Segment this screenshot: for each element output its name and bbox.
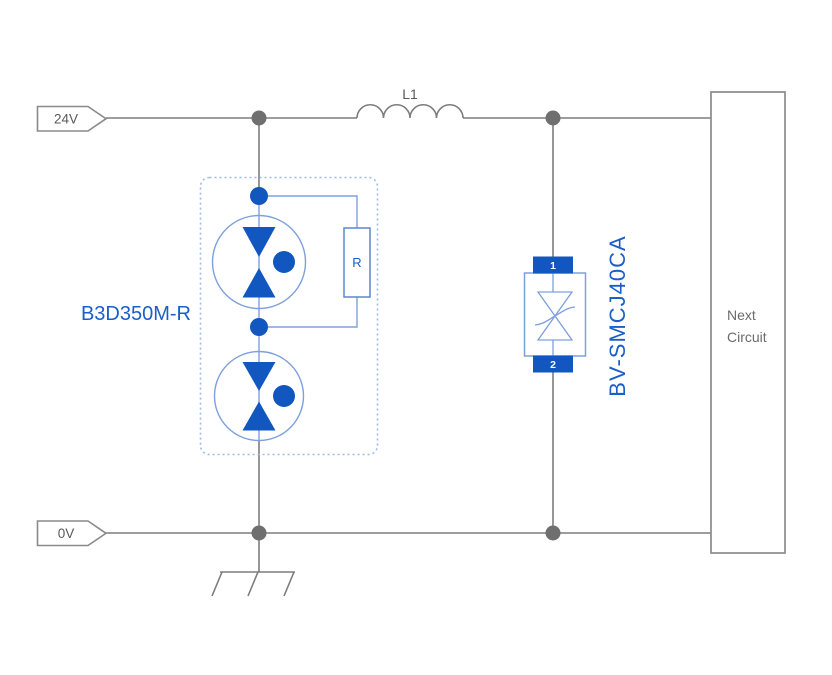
surge-module-part-label: B3D350M-R [81, 303, 191, 325]
net-tags [38, 107, 107, 546]
tvs-pin-1-label: 1 [550, 260, 556, 272]
schematic-canvas: 24V 0V L1 Next Circuit R [0, 0, 832, 675]
gdt-tube-2-electrode-top-icon [243, 362, 276, 391]
junction-0v-gdt [252, 526, 267, 541]
next-circuit-label-line2: Circuit [727, 329, 767, 345]
inductor-ref-label: L1 [402, 86, 418, 102]
next-circuit-label-line1: Next [727, 307, 756, 323]
wire-resistor-loop-bottom [266, 297, 357, 327]
tvs-part-label: BV-SMCJ40CA [605, 235, 630, 396]
gdt-tube-1-electrode-bottom-icon [243, 268, 276, 298]
junction-24v-tvs [546, 111, 561, 126]
surge-module-outline [201, 178, 378, 455]
gdt-node-mid [250, 318, 268, 336]
tvs-pin-2-label: 2 [550, 359, 556, 371]
ground-icon [212, 572, 295, 596]
resistor-label: R [352, 255, 361, 270]
inductor-coil-icon [357, 105, 463, 118]
gdt-tube-2-gas-dot-icon [273, 385, 295, 407]
gdt-solids [243, 187, 296, 431]
junction-0v-tvs [546, 526, 561, 541]
gdt-tube-1-electrode-top-icon [243, 227, 276, 257]
net-tag-24v-label: 24V [54, 112, 78, 127]
gdt-node-top [250, 187, 268, 205]
gdt-tube-1-gas-dot-icon [273, 251, 295, 273]
net-tag-0v-label: 0V [58, 526, 75, 541]
gdt-tube-2-electrode-bottom-icon [243, 402, 276, 431]
wire-resistor-loop-top [266, 196, 357, 228]
junction-24v-gdt [252, 111, 267, 126]
junction-dots [252, 111, 561, 541]
